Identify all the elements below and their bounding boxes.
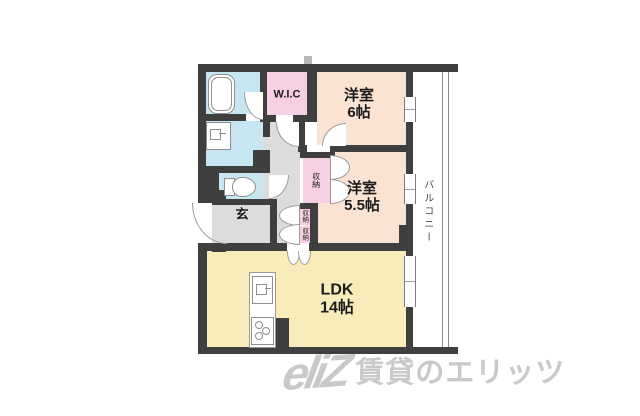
wall-wic-right bbox=[307, 64, 317, 122]
watermark-text: 賃貸のエリッツ bbox=[355, 349, 565, 391]
floor-plan: W.I.C 洋室 6帖 洋室 5.5帖 LDK 14帖 玄 バルコニー 収納 収… bbox=[0, 0, 640, 416]
ldk-name: LDK bbox=[320, 282, 354, 300]
watermark-logo: eliZ bbox=[279, 343, 353, 401]
balcony-railing bbox=[442, 71, 449, 347]
kitchen-sink-icon bbox=[252, 276, 273, 304]
bathtub-icon bbox=[208, 74, 235, 114]
washbasin-icon bbox=[206, 122, 231, 150]
closet-hall-lower-label: 収納 bbox=[300, 228, 307, 241]
door-arc-bathroom bbox=[244, 92, 263, 120]
wall-closet-column bbox=[310, 203, 318, 243]
wall-closet-main-bottom bbox=[300, 203, 318, 209]
wall-ldk-top-a bbox=[198, 243, 287, 251]
bedroom55-label: 洋室 5.5帖 bbox=[344, 180, 380, 215]
wall-top bbox=[198, 64, 458, 72]
wall-ldk-top-b bbox=[309, 243, 413, 251]
watermark: eliZ賃貸のエリッツ bbox=[284, 345, 565, 399]
entry-door-arc bbox=[192, 203, 227, 244]
wall-wic-bottom-b bbox=[293, 115, 307, 122]
genkan-label: 玄 bbox=[235, 208, 248, 223]
wall-left-lower bbox=[198, 251, 207, 354]
wall-toilet-top bbox=[219, 166, 263, 173]
balcony-label: バルコニー bbox=[421, 180, 433, 245]
window-bedroom55 bbox=[404, 174, 416, 204]
window-ldk bbox=[404, 256, 416, 307]
wall-right-1 bbox=[406, 64, 413, 97]
closet-main-label: 収納 bbox=[311, 172, 320, 188]
bedroom6-label: 洋室 6帖 bbox=[344, 87, 374, 122]
wall-hall-bedroom6 bbox=[298, 122, 305, 145]
bedroom55-size: 5.5帖 bbox=[344, 197, 380, 214]
wall-bath-bottom bbox=[198, 114, 246, 121]
wall-toilet-left bbox=[205, 166, 219, 199]
window-bedroom6 bbox=[404, 97, 416, 122]
bedroom55-name: 洋室 bbox=[344, 180, 380, 197]
ldk-label: LDK 14帖 bbox=[320, 282, 354, 319]
ldk-size: 14帖 bbox=[320, 300, 354, 318]
closet-hall-upper-label: 収納 bbox=[300, 210, 307, 223]
wall-washroom-hall bbox=[263, 115, 270, 137]
ldk-room bbox=[205, 251, 406, 347]
bedroom6-name: 洋室 bbox=[344, 87, 374, 104]
wic-label: W.I.C bbox=[274, 89, 301, 102]
stove-icon bbox=[251, 317, 274, 345]
wall-bedroom6-bottom-b bbox=[330, 145, 413, 152]
bedroom6-size: 6帖 bbox=[344, 104, 374, 121]
wall-genkan-closet bbox=[270, 199, 277, 243]
wall-bedroom6-bottom-a bbox=[298, 145, 307, 152]
wall-tick-above-top bbox=[304, 56, 312, 64]
